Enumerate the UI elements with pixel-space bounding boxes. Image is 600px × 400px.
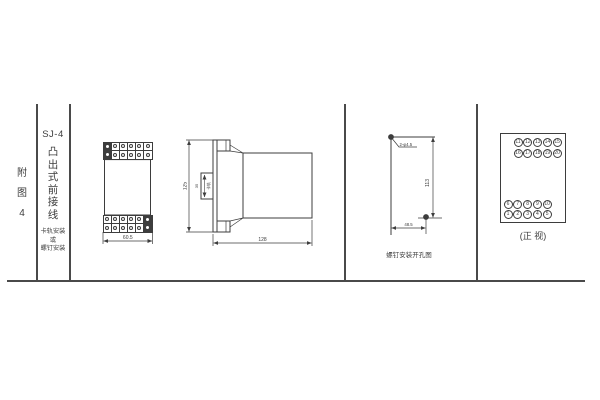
terminal-view-caption: (正 视) — [500, 229, 566, 242]
screw-dot — [137, 217, 141, 221]
terminal-number-5: 5 — [543, 210, 552, 219]
mounting-note-line: 卡轨安装 — [37, 228, 69, 237]
drill-diagram-outline: 2-φ4.5 113 48.5 螺钉安装开孔图 — [380, 130, 470, 262]
rail-dim: 35 — [194, 183, 199, 188]
terminal-number-9: 9 — [533, 200, 542, 209]
terminal-number-11: 11 — [514, 138, 523, 147]
title-char: 前 — [37, 184, 69, 197]
section-divider-2 — [476, 104, 478, 280]
terminal-number-20: 20 — [553, 149, 562, 158]
side-view-outline: 125 35 卡轨 128 — [183, 128, 325, 250]
terminal-screw — [136, 216, 144, 224]
terminal-screw — [144, 151, 152, 159]
mounting-note-line: 螺钉安装 — [37, 245, 69, 254]
terminal-number-14: 14 — [543, 138, 552, 147]
relay-body-rect — [105, 160, 151, 215]
terminal-screw — [112, 143, 120, 151]
drill-diagram: 2-φ4.5 113 48.5 螺钉安装开孔图 — [380, 130, 470, 262]
terminal-screw — [120, 151, 128, 159]
screw-dot — [129, 226, 133, 230]
case-body-rect — [243, 153, 312, 218]
terminal-number-18: 18 — [533, 149, 542, 158]
screw-dot — [129, 217, 133, 221]
terminal-number-17: 17 — [523, 149, 532, 158]
terminal-screw — [104, 143, 112, 151]
terminal-number-1: 1 — [504, 210, 513, 219]
terminal-number-15: 15 — [553, 138, 562, 147]
screw-dot — [113, 226, 117, 230]
model-label: SJ-4 — [37, 129, 69, 140]
screw-dot — [105, 226, 109, 230]
terminal-screw — [144, 224, 152, 232]
terminal-layout-panel: 1112131415161718192067891012345 — [500, 133, 566, 223]
side-depth-dim: 128 — [258, 237, 267, 243]
mounting-note: 卡轨安装 或 螺钉安装 — [37, 228, 69, 254]
screw-dot — [106, 145, 109, 148]
terminal-number-4: 4 — [533, 210, 542, 219]
terminal-number-8: 8 — [523, 200, 532, 209]
screw-dot — [105, 217, 109, 221]
screw-dot — [129, 153, 133, 157]
screw-dot — [146, 153, 150, 157]
screw-dot — [121, 226, 125, 230]
side-view-drawing: 125 35 卡轨 128 — [183, 128, 325, 250]
terminal-number-2: 2 — [513, 210, 522, 219]
screw-dot — [113, 144, 117, 148]
terminal-number-12: 12 — [523, 138, 532, 147]
figure-char: 附 — [14, 168, 30, 179]
figure-title-vertical: 凸 出 式 前 接 线 — [37, 146, 69, 221]
figure-number-label: 附 图 4 — [14, 168, 30, 228]
sidebar-divider-2 — [69, 104, 71, 280]
screw-dot — [137, 153, 141, 157]
section-divider-1 — [344, 104, 346, 280]
front-view-drawing: 60.5 — [95, 128, 170, 250]
figure-char: 4 — [14, 208, 30, 219]
terminal-screw — [136, 224, 144, 232]
screw-dot — [113, 153, 117, 157]
terminal-block-top — [103, 142, 153, 160]
side-height-dim: 125 — [183, 182, 189, 191]
screw-dot — [146, 218, 149, 221]
title-char: 线 — [37, 209, 69, 222]
terminal-screw — [128, 216, 136, 224]
terminal-screw — [120, 224, 128, 232]
terminal-screw — [120, 216, 128, 224]
screw-dot — [137, 144, 141, 148]
terminal-screw — [144, 143, 152, 151]
figure-page: 附 图 4 SJ-4 凸 出 式 前 接 线 卡轨安装 或 螺钉安装 — [0, 0, 600, 400]
top-step — [217, 140, 230, 151]
terminal-number-7: 7 — [513, 200, 522, 209]
terminal-screw — [136, 151, 144, 159]
title-char: 式 — [37, 171, 69, 184]
drill-vertical-dim: 113 — [425, 179, 431, 187]
terminal-screw — [104, 216, 112, 224]
terminal-screw — [120, 143, 128, 151]
mount-hole-bottom — [424, 215, 429, 220]
screw-dot — [121, 144, 125, 148]
front-flange — [213, 140, 217, 232]
screw-dot — [113, 217, 117, 221]
terminal-screw — [112, 151, 120, 159]
terminal-number-19: 19 — [543, 149, 552, 158]
terminal-number-3: 3 — [523, 210, 532, 219]
drill-horizontal-dim: 48.5 — [404, 222, 413, 227]
screw-dot — [146, 226, 149, 229]
front-width-dim: 60.5 — [123, 235, 133, 241]
terminal-screw — [144, 216, 152, 224]
terminal-number-13: 13 — [533, 138, 542, 147]
drill-caption: 螺钉安装开孔图 — [386, 250, 432, 259]
terminal-screw — [128, 143, 136, 151]
terminal-screw — [112, 224, 120, 232]
mount-hole-top — [389, 135, 394, 140]
bottom-step — [217, 221, 230, 232]
terminal-screw — [104, 151, 112, 159]
title-char: 接 — [37, 196, 69, 209]
figure-char: 图 — [14, 188, 30, 199]
screw-dot — [146, 144, 150, 148]
terminal-number-16: 16 — [514, 149, 523, 158]
hole-spec-label: 2-φ4.5 — [400, 142, 413, 147]
screw-dot — [137, 226, 141, 230]
terminal-screw — [136, 143, 144, 151]
screw-dot — [121, 153, 125, 157]
title-char: 出 — [37, 159, 69, 172]
terminal-number-10: 10 — [543, 200, 552, 209]
terminal-screw — [128, 151, 136, 159]
screw-dot — [106, 153, 109, 156]
terminal-screw — [104, 224, 112, 232]
terminal-number-6: 6 — [504, 200, 513, 209]
mounting-note-line: 或 — [37, 237, 69, 246]
transition-lines — [230, 145, 243, 227]
terminal-block-bottom — [103, 215, 153, 233]
terminal-screw — [128, 224, 136, 232]
terminal-screw — [112, 216, 120, 224]
title-char: 凸 — [37, 146, 69, 159]
rail-label: 卡轨 — [206, 182, 211, 190]
screw-dot — [121, 217, 125, 221]
bottom-rule — [7, 280, 585, 282]
screw-dot — [129, 144, 133, 148]
